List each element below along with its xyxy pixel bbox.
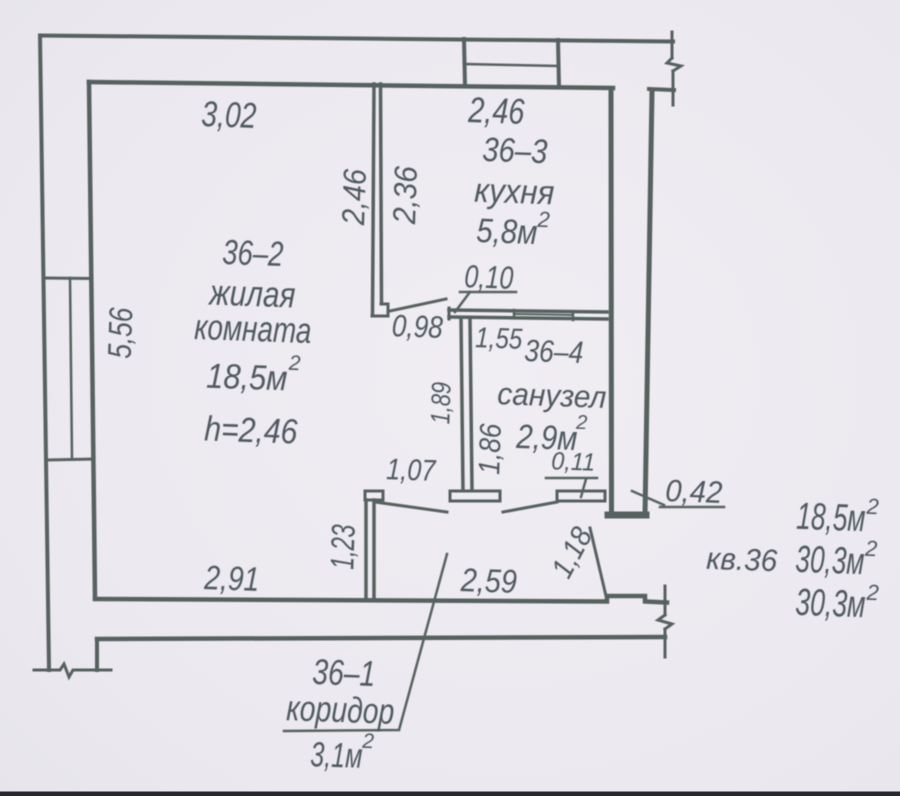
svg-text:30,3м: 30,3м [795, 539, 865, 583]
svg-text:2: 2 [536, 207, 550, 232]
svg-text:18,5м: 18,5м [796, 496, 866, 540]
svg-text:1,89: 1,89 [425, 382, 456, 425]
svg-text:2: 2 [864, 536, 878, 561]
svg-text:2: 2 [865, 580, 879, 605]
svg-text:1,86: 1,86 [473, 423, 508, 475]
svg-text:2,46: 2,46 [335, 168, 373, 226]
svg-text:0,11: 0,11 [551, 447, 596, 477]
svg-text:18,5м: 18,5м [206, 357, 288, 399]
svg-text:0,98: 0,98 [391, 308, 444, 345]
svg-text:2,91: 2,91 [203, 559, 260, 599]
svg-text:3,02: 3,02 [201, 93, 257, 136]
svg-text:2,59: 2,59 [459, 561, 517, 600]
svg-text:1,07: 1,07 [386, 453, 437, 488]
svg-text:30,3м: 30,3м [795, 582, 866, 626]
svg-text:3,1м: 3,1м [310, 735, 363, 776]
svg-text:36–4: 36–4 [524, 333, 584, 370]
svg-text:санузел: санузел [497, 376, 607, 415]
svg-text:5,8м: 5,8м [476, 212, 538, 252]
svg-text:2: 2 [287, 352, 301, 375]
svg-text:h=2,46: h=2,46 [204, 409, 299, 451]
svg-text:2: 2 [865, 494, 879, 519]
svg-text:2: 2 [575, 412, 588, 434]
svg-text:2,36: 2,36 [386, 165, 424, 225]
svg-text:1,23: 1,23 [323, 523, 362, 570]
svg-text:36–3: 36–3 [482, 131, 548, 171]
svg-text:коридор: коридор [286, 687, 395, 732]
svg-text:2,46: 2,46 [467, 89, 526, 132]
svg-text:0,10: 0,10 [464, 258, 514, 296]
svg-text:36–2: 36–2 [222, 233, 284, 274]
svg-text:5,56: 5,56 [101, 306, 140, 359]
svg-text:2: 2 [361, 730, 375, 753]
svg-text:комната: комната [194, 306, 312, 351]
svg-text:кв.36: кв.36 [706, 541, 779, 578]
svg-text:1,55: 1,55 [475, 322, 524, 356]
svg-text:0,42: 0,42 [665, 473, 723, 510]
